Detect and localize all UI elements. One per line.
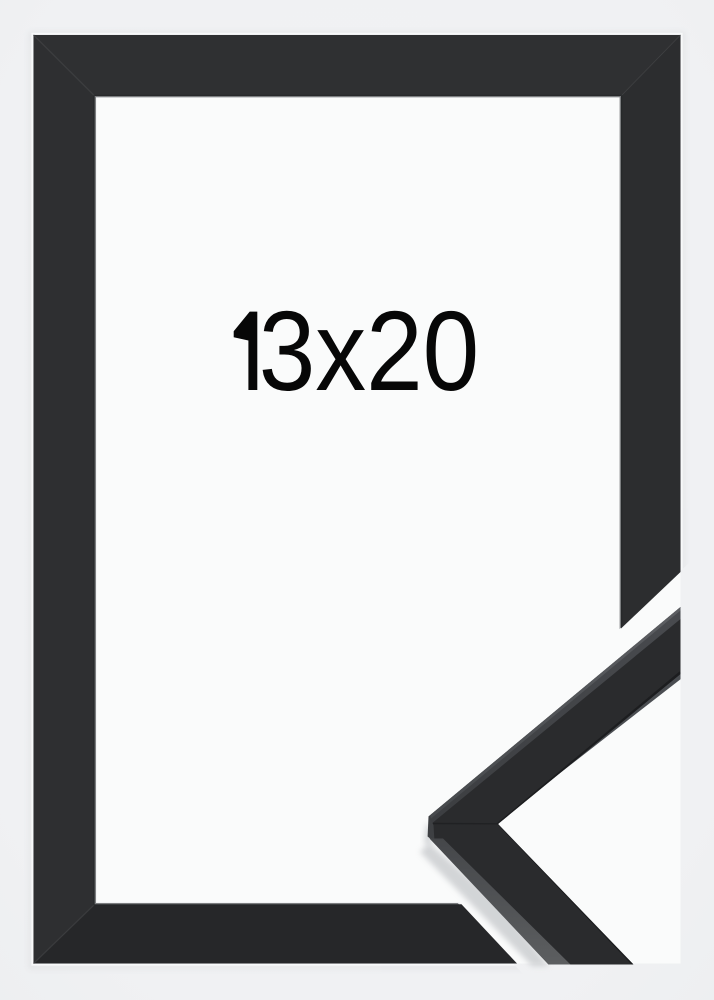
svg-text:3x20: 3x20 [259, 288, 480, 414]
